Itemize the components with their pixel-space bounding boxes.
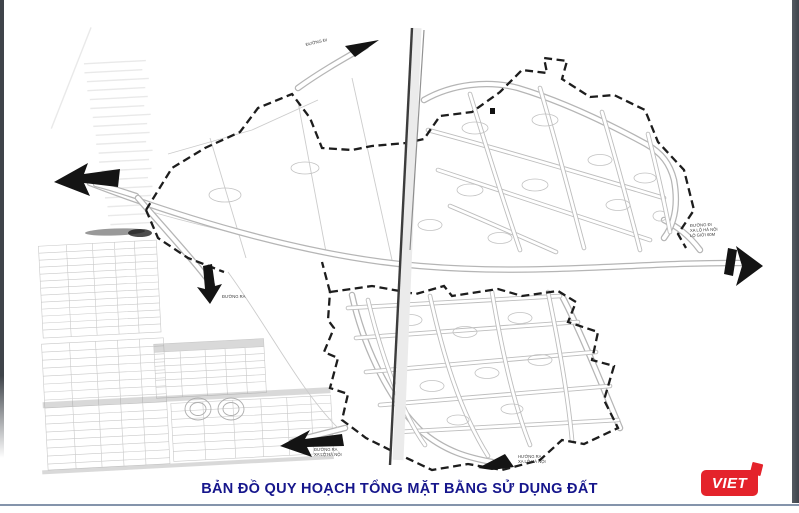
upper-street-grid — [428, 88, 670, 252]
map-graphic: ĐƯỜNG ĐI ĐƯỜNG ĐI XA LỘ HÀ NỘI LỘ GIỚI 6… — [0, 0, 799, 513]
viet-logo[interactable]: VIET — [701, 470, 758, 496]
arrow-right-bar — [724, 248, 737, 276]
road-label: XA LỘ HÀ NỘI — [314, 452, 342, 457]
road-label: LỘ GIỚI 60M — [690, 232, 716, 238]
scan-right-edge — [792, 0, 799, 503]
road-label: ĐƯỜNG RA — [222, 294, 246, 299]
road-label: ĐƯỜNG ĐI — [305, 37, 327, 47]
road-label: XA LỘ HÀ NỘI — [518, 459, 546, 464]
map-caption-title: BẢN ĐỒ QUY HOẠCH TỔNG MẶT BẰNG SỬ DỤNG Đ… — [0, 481, 799, 497]
statistics-tables — [30, 231, 334, 474]
viet-logo-text: VIET — [712, 475, 747, 492]
scan-smudge-dark — [128, 229, 152, 237]
lower-street-grid — [228, 272, 618, 456]
scanned-map-page: ĐƯỜNG ĐI ĐƯỜNG ĐI XA LỘ HÀ NỘI LỘ GIỚI 6… — [0, 0, 799, 513]
scan-left-edge — [0, 0, 4, 458]
parcel-lines — [152, 78, 398, 262]
paper-fold-line — [390, 28, 424, 465]
caption-underline — [0, 504, 799, 506]
